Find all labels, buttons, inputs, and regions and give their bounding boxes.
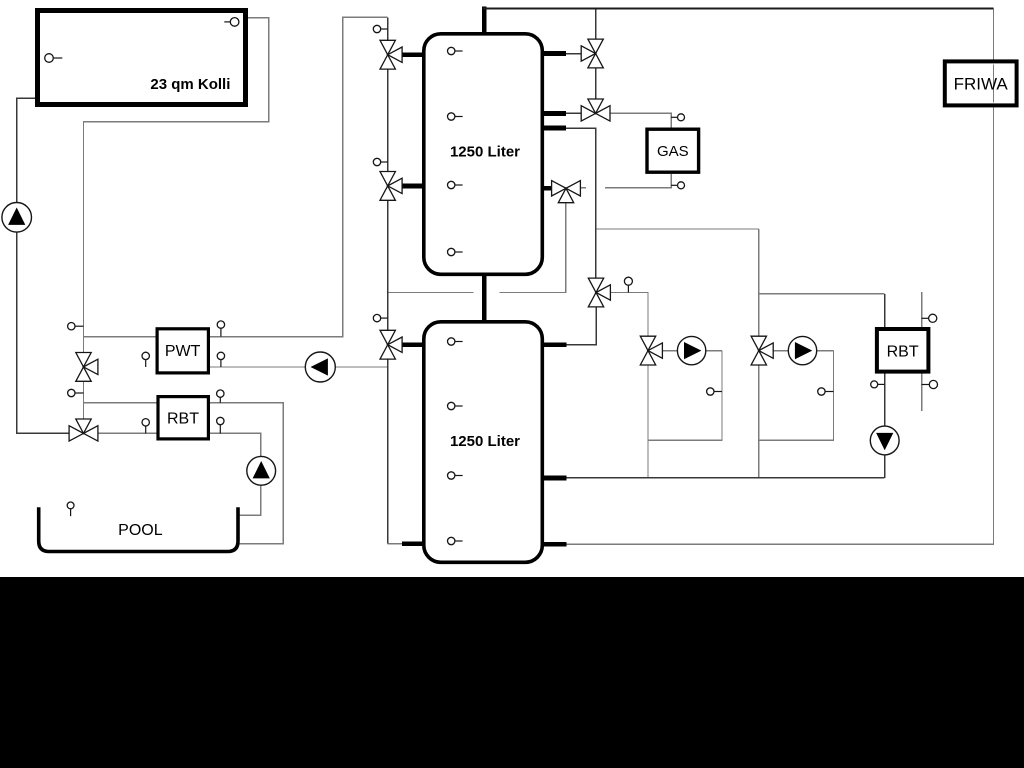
svg-text:POOL: POOL — [118, 522, 163, 539]
svg-text:1250 Liter: 1250 Liter — [450, 144, 520, 161]
svg-text:1250 Liter: 1250 Liter — [450, 433, 520, 450]
svg-text:RBT: RBT — [887, 343, 919, 360]
svg-text:23 qm Kolli: 23 qm Kolli — [150, 76, 230, 93]
svg-text:RBT: RBT — [167, 410, 199, 427]
svg-text:PWT: PWT — [165, 343, 201, 360]
svg-text:FRIWA: FRIWA — [954, 74, 1009, 93]
svg-text:GAS: GAS — [657, 143, 689, 160]
